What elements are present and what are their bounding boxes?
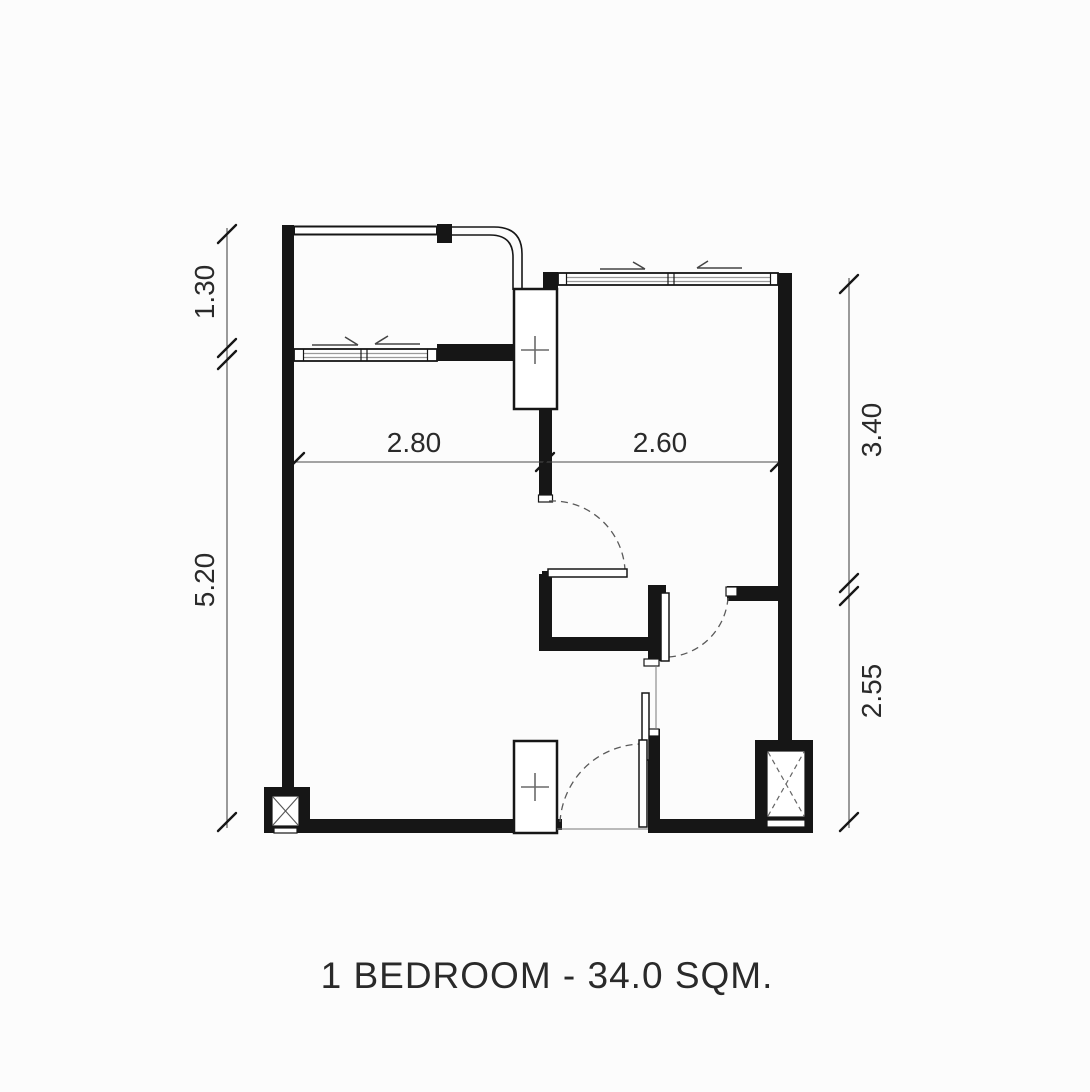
living-window-wall — [437, 344, 517, 361]
left-wall — [282, 225, 294, 788]
plan-title: 1 BEDROOM - 34.0 SQM. — [321, 955, 774, 996]
partition-wall-upper — [539, 409, 552, 496]
dim-label-right-bottom: 2.55 — [856, 664, 887, 719]
bedroom-top-wall-piece — [543, 272, 558, 290]
bathroom-left-wall — [648, 729, 660, 823]
dim-label-inner-right: 2.60 — [633, 427, 688, 458]
door-swing-arc — [549, 501, 625, 570]
slide-arrow-icon — [600, 261, 742, 269]
closet-nook-wall — [539, 637, 651, 651]
door-swing-arc — [669, 598, 728, 657]
dim-label-left-bottom: 5.20 — [189, 553, 220, 608]
balcony-railing-curve-outer — [452, 227, 522, 290]
balcony-railing-top — [294, 227, 437, 235]
bedroom-window — [558, 273, 778, 285]
shafts-and-columns — [264, 289, 813, 833]
bedroom-door — [542, 501, 627, 579]
dim-label-inner-left: 2.80 — [387, 427, 442, 458]
balcony-railing-curve-inner — [452, 235, 513, 290]
wall-end-cap — [644, 659, 659, 666]
entrance-door — [557, 740, 648, 829]
column-base-strip — [767, 820, 805, 827]
floor-plan: 1.30 5.20 3.40 2.55 2.80 2.60 1 BEDROOM … — [0, 0, 1090, 1092]
right-wall — [778, 273, 792, 741]
doors — [542, 501, 728, 829]
bottom-wall-left — [308, 819, 514, 833]
slide-arrow-icon — [312, 336, 420, 345]
balcony-railing — [294, 227, 522, 291]
door-leaf — [661, 593, 669, 661]
door-swing-arc — [560, 744, 640, 822]
bottom-wall-right — [648, 819, 770, 833]
bathroom-door — [661, 593, 728, 661]
living-window — [294, 349, 437, 361]
dim-label-left-top: 1.30 — [189, 265, 220, 320]
dim-label-right-top: 3.40 — [856, 403, 887, 458]
column-base-strip — [274, 828, 297, 833]
door-leaf — [639, 740, 647, 827]
balcony-railing-post — [437, 224, 452, 243]
door-leaf — [548, 569, 627, 577]
wall-end-cap — [726, 587, 737, 596]
